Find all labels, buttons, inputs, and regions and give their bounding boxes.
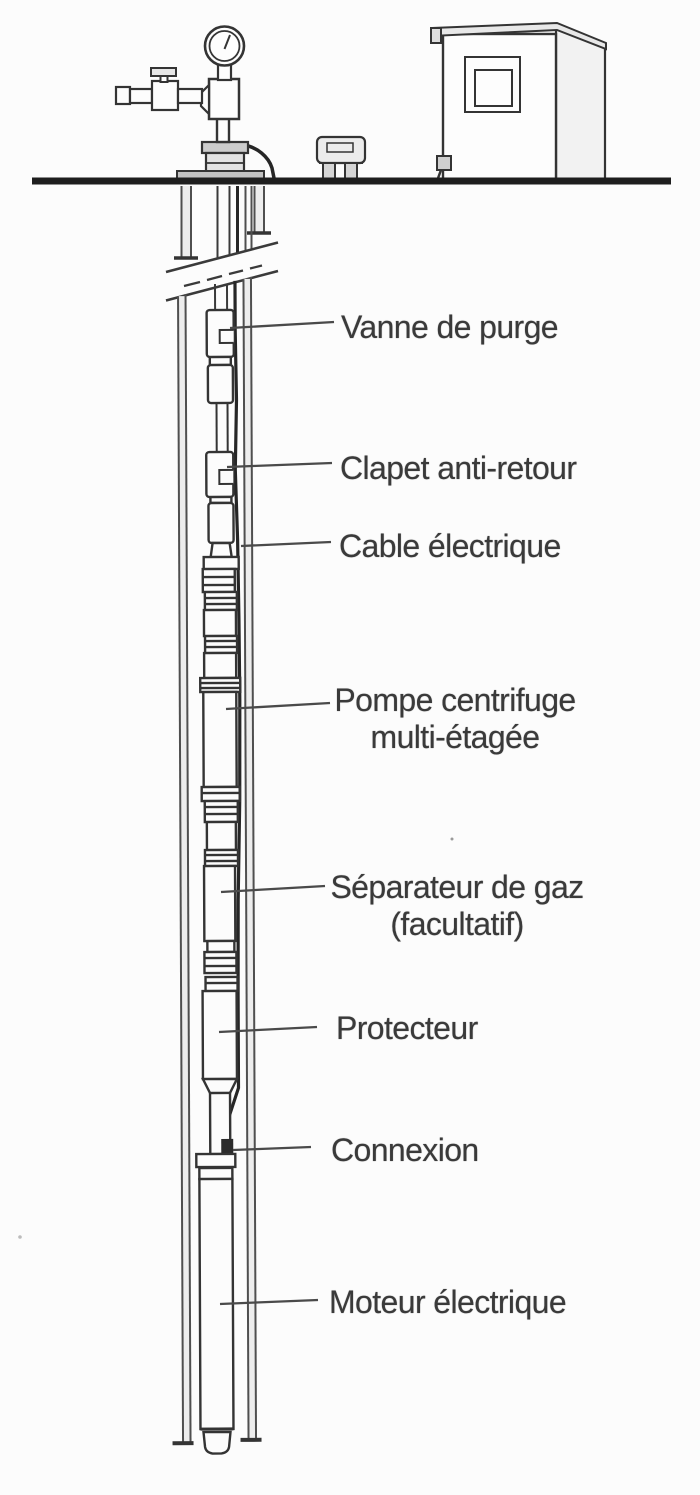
pump-component [200,543,241,866]
label-connection: Connexion [331,1132,479,1169]
leader-pump [226,703,330,709]
label-electric-cable: Cable électrique [339,528,561,565]
gas-separator-component [204,866,238,991]
surface-equipment [32,23,671,181]
label-gas-separator-line1: Séparateur de gaz [330,869,584,906]
protector-component [203,991,238,1154]
control-cabinet-icon [431,23,606,181]
wing-valve-icon [116,68,202,110]
pressure-gauge-icon [205,27,244,81]
label-protector: Protecteur [336,1010,478,1047]
wellhead-assembly [116,27,274,179]
leader-electric-cable [241,542,331,546]
label-gas-separator-line2: (facultatif) [330,906,584,943]
label-pump-line1: Pompe centrifuge [332,682,578,719]
leader-check-valve [227,463,332,467]
check-valve-component [206,452,233,543]
label-check-valve: Clapet anti-retour [340,450,576,487]
purge-valve-component [207,310,234,403]
leader-connection [233,1147,311,1150]
leader-gas-separator [221,886,325,892]
label-purge-valve: Vanne de purge [341,309,558,346]
label-pump-line2: multi-étagée [332,719,578,756]
esp-well-figure: Vanne de purge Clapet anti-retour Cable … [0,0,700,1495]
cabinet-cable-connector [437,156,451,170]
label-motor: Moteur électrique [329,1284,566,1321]
label-pump: Pompe centrifuge multi-étagée [332,682,578,756]
scan-speck [18,1235,22,1239]
leader-motor [220,1300,318,1304]
junction-box-icon [317,137,365,180]
label-gas-separator: Séparateur de gaz (facultatif) [330,869,584,943]
scan-speck [451,838,454,841]
lower-well-section [167,277,261,1454]
